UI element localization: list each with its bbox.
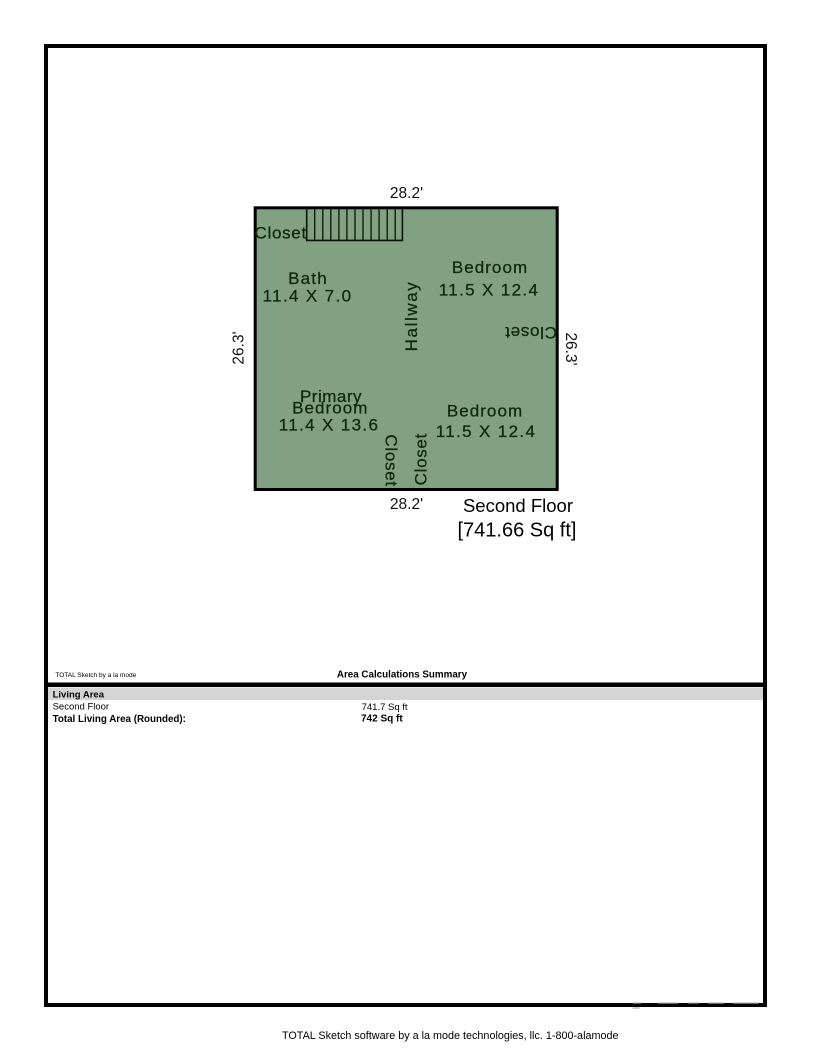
- svg-text:Closet: Closet: [505, 323, 557, 342]
- svg-text:11.4 X 13.6: 11.4 X 13.6: [279, 416, 380, 435]
- svg-text:Area Calculations Summary: Area Calculations Summary: [337, 669, 468, 680]
- svg-text:Second Floor: Second Floor: [53, 702, 110, 713]
- svg-text:Bedroom: Bedroom: [452, 258, 528, 277]
- svg-text:Bedroom: Bedroom: [447, 402, 523, 421]
- svg-text:Total Living Area (Rounded):: Total Living Area (Rounded):: [53, 714, 186, 725]
- svg-text:TOTAL Sketch by a la mode: TOTAL Sketch by a la mode: [55, 672, 136, 679]
- svg-text:28.2': 28.2': [390, 185, 423, 202]
- svg-text:742 Sq ft: 742 Sq ft: [361, 714, 403, 725]
- svg-text:741.7 Sq ft: 741.7 Sq ft: [362, 702, 408, 713]
- svg-text:Bath: Bath: [288, 269, 328, 288]
- svg-text:Living Area: Living Area: [53, 689, 105, 700]
- svg-text:Closet: Closet: [412, 433, 431, 485]
- svg-text:11.5 X 12.4: 11.5 X 12.4: [436, 422, 537, 441]
- svg-text:[741.66 Sq ft]: [741.66 Sq ft]: [458, 520, 577, 542]
- svg-text:TOTAL Sketch software by a la: TOTAL Sketch software by a la mode techn…: [282, 1030, 618, 1042]
- svg-text:Hallway: Hallway: [402, 281, 421, 352]
- svg-text:26.3': 26.3': [562, 332, 579, 365]
- svg-text:11.4 X 7.0: 11.4 X 7.0: [263, 287, 353, 306]
- svg-text:28.2': 28.2': [390, 496, 423, 513]
- svg-text:Closet: Closet: [381, 434, 400, 486]
- svg-text:26.3': 26.3': [231, 331, 248, 364]
- svg-text:Closet: Closet: [255, 224, 307, 243]
- svg-text:Second Floor: Second Floor: [463, 495, 573, 516]
- svg-text:11.5 X 12.4: 11.5 X 12.4: [439, 280, 540, 299]
